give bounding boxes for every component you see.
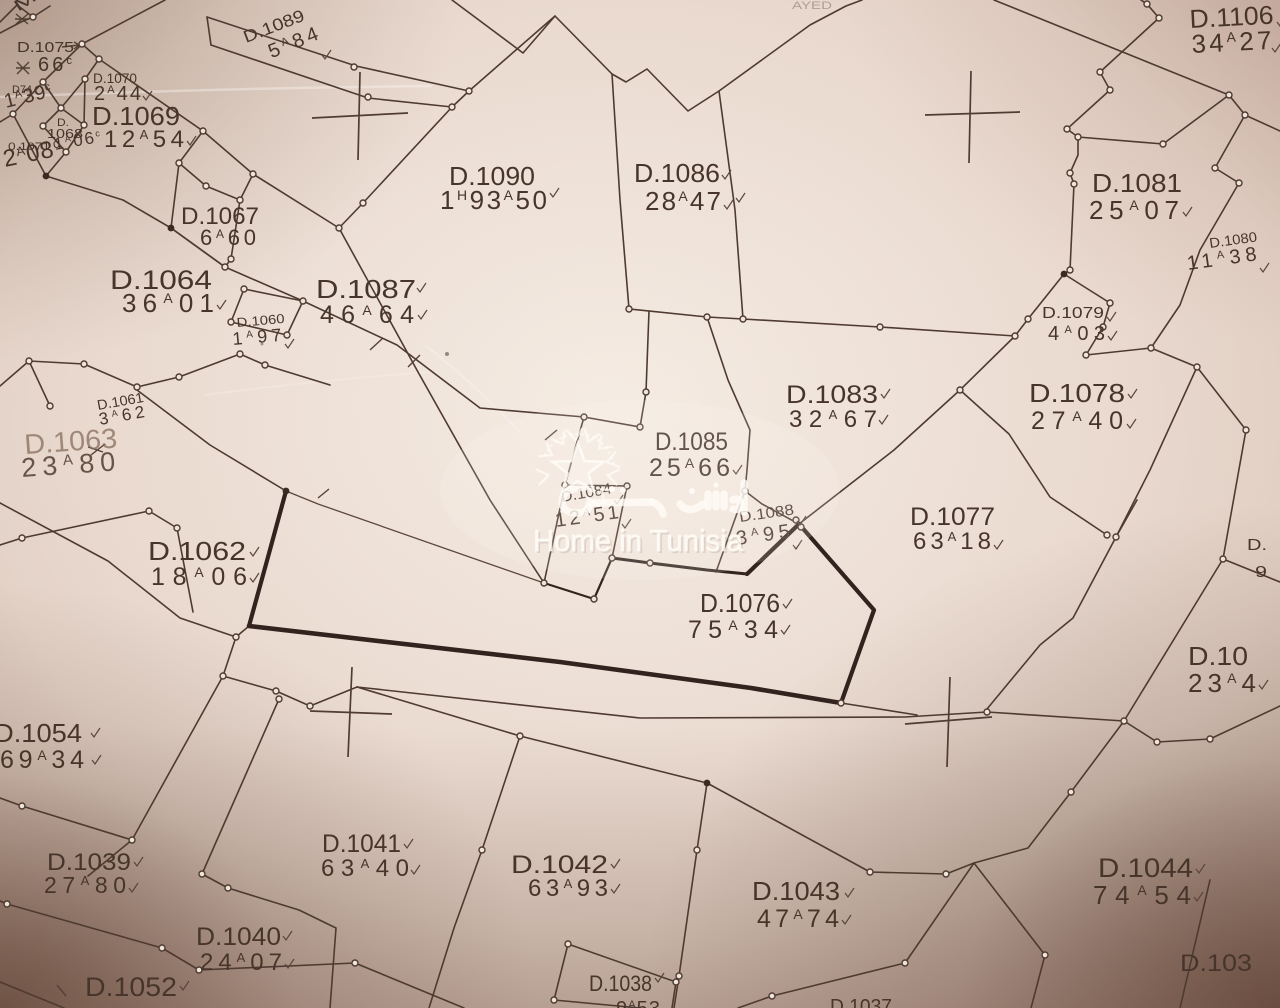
svg-text:D.1078: D.1078 — [1029, 378, 1125, 408]
svg-text:6A60: 6A60 — [200, 225, 256, 250]
svg-text:D.103: D.103 — [1180, 950, 1252, 977]
svg-text:D.1062: D.1062 — [148, 536, 246, 566]
svg-text:D.1041: D.1041 — [322, 830, 401, 858]
svg-text:D.1083: D.1083 — [786, 381, 878, 409]
svg-text:Home in Tunisia: Home in Tunisia — [533, 523, 744, 558]
svg-text:D.: D. — [1247, 537, 1267, 554]
svg-text:D.1052: D.1052 — [85, 972, 177, 1002]
svg-text:9A53: 9A53 — [616, 998, 660, 1008]
svg-text:D.1077: D.1077 — [910, 503, 995, 531]
svg-text:2A44: 2A44 — [94, 83, 141, 105]
svg-text:D.1037: D.1037 — [830, 996, 892, 1008]
svg-text:AYED: AYED — [792, 0, 832, 12]
svg-text:4A03: 4A03 — [1048, 323, 1105, 345]
svg-text:23A4: 23A4 — [1188, 668, 1256, 698]
svg-text:D.1079: D.1079 — [1042, 305, 1104, 322]
svg-text:D.10: D.10 — [1188, 641, 1248, 671]
svg-text:D.1081: D.1081 — [1092, 168, 1182, 198]
svg-text:D.1087: D.1087 — [316, 274, 416, 304]
svg-text:9: 9 — [1255, 564, 1267, 581]
svg-text:D.1038: D.1038 — [589, 971, 652, 996]
svg-text:D.1054: D.1054 — [0, 718, 82, 748]
svg-text:D.1076: D.1076 — [700, 588, 780, 618]
svg-text:D.1040: D.1040 — [196, 923, 281, 951]
svg-text:D.1042: D.1042 — [511, 851, 608, 879]
svg-text:D.1043: D.1043 — [752, 876, 840, 906]
svg-text:D.1086: D.1086 — [634, 158, 720, 188]
svg-text:D.1044: D.1044 — [1098, 853, 1193, 883]
